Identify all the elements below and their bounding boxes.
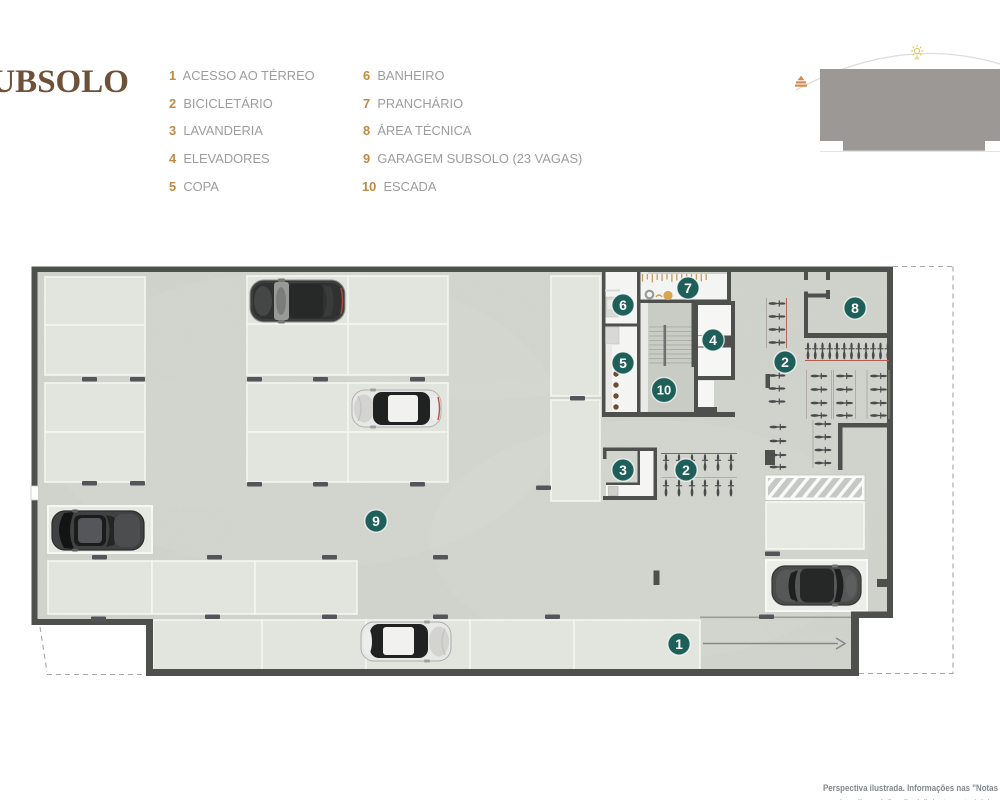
svg-text:7: 7 [684, 280, 692, 296]
svg-text:8: 8 [851, 300, 859, 316]
svg-text:10: 10 [657, 383, 671, 398]
svg-text:9: 9 [372, 513, 380, 529]
svg-text:2: 2 [682, 462, 690, 478]
svg-text:1: 1 [675, 636, 683, 652]
svg-text:2: 2 [781, 354, 789, 370]
svg-text:6: 6 [619, 297, 627, 313]
svg-text:5: 5 [619, 355, 627, 371]
svg-text:3: 3 [619, 462, 627, 478]
svg-text:4: 4 [709, 332, 717, 348]
